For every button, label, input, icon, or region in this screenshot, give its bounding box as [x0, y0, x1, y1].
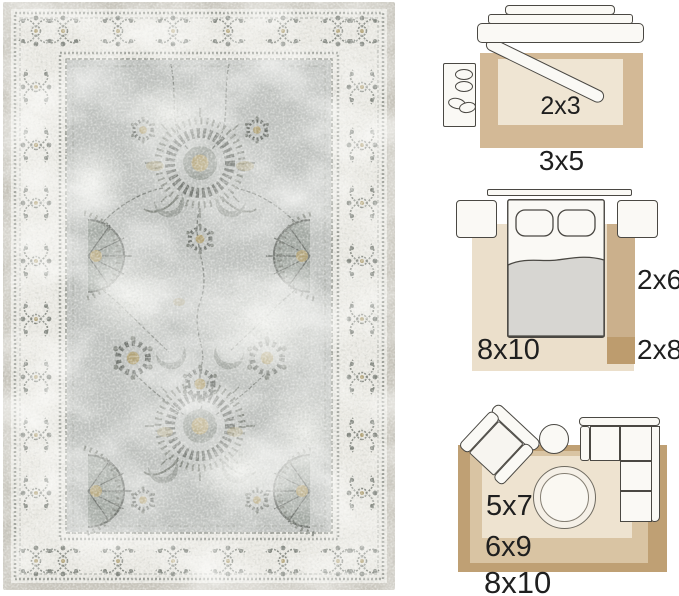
- sectional-sofa-icon: [0, 0, 679, 596]
- rug-product-image: 2x3 3x5 8x10 2x6 2x8: [0, 0, 679, 596]
- size-diagram-living-room: 5x7 6x9 8x10: [0, 0, 679, 596]
- label-living-small-size: 5x7: [486, 492, 533, 521]
- label-living-large-size: 8x10: [484, 567, 551, 596]
- label-living-medium-size: 6x9: [485, 533, 532, 562]
